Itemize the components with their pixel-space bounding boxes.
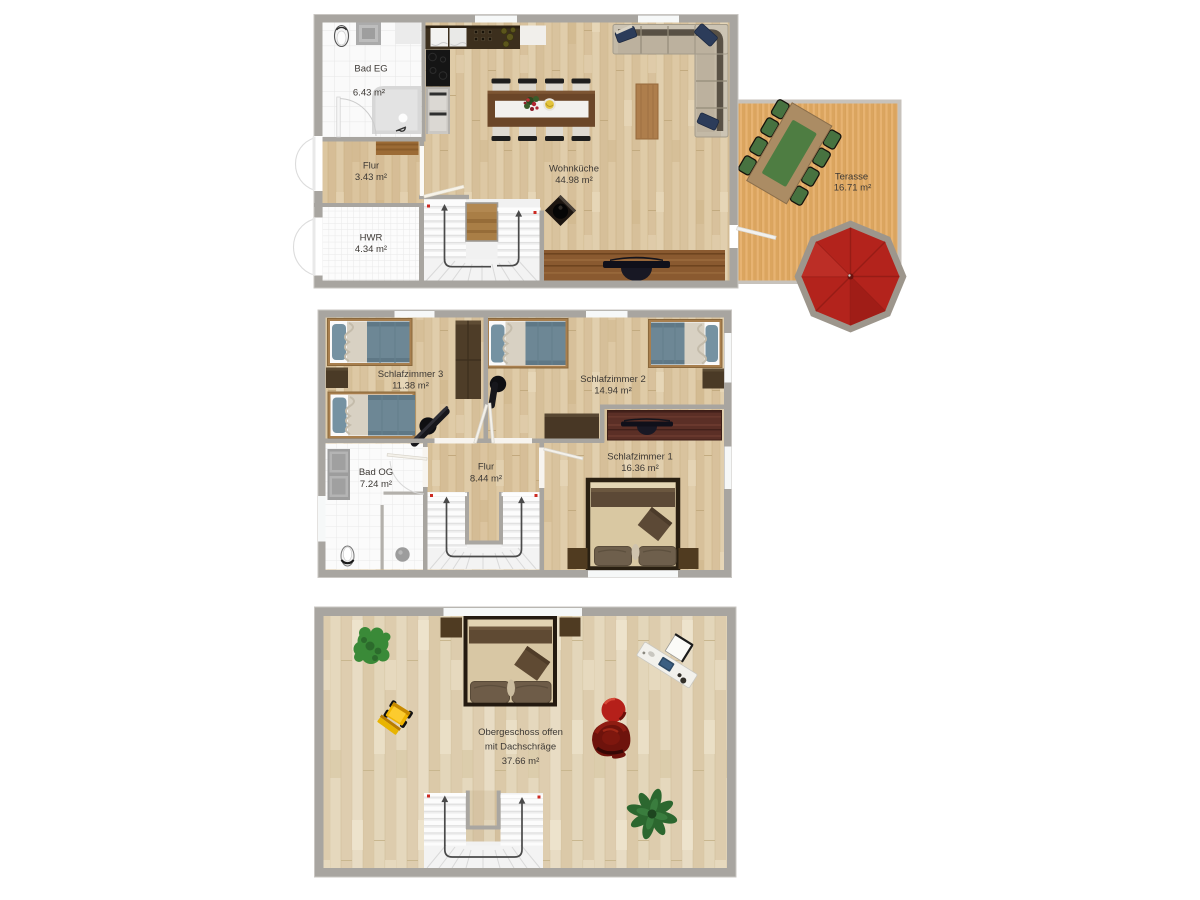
svg-text:mit Dachschräge: mit Dachschräge — [485, 742, 556, 753]
svg-text:Schlafzimmer 2: Schlafzimmer 2 — [580, 374, 645, 385]
svg-text:Terasse: Terasse — [835, 172, 868, 183]
svg-text:37.66 m²: 37.66 m² — [502, 756, 540, 767]
svg-text:Flur: Flur — [478, 462, 494, 473]
svg-text:3.43 m²: 3.43 m² — [355, 172, 387, 183]
svg-text:Bad OG: Bad OG — [359, 467, 393, 478]
svg-text:Flur: Flur — [363, 161, 379, 172]
svg-text:16.36 m²: 16.36 m² — [621, 463, 659, 474]
svg-text:11.38 m²: 11.38 m² — [392, 381, 429, 392]
svg-text:Wohnküche: Wohnküche — [549, 164, 599, 175]
svg-text:4.34 m²: 4.34 m² — [355, 244, 387, 255]
svg-text:Bad EG: Bad EG — [354, 64, 387, 75]
svg-text:14.94 m²: 14.94 m² — [594, 386, 632, 397]
svg-text:16.71 m²: 16.71 m² — [834, 183, 872, 194]
svg-text:HWR: HWR — [360, 233, 383, 244]
svg-text:6.43 m²: 6.43 m² — [353, 88, 385, 99]
svg-text:Schlafzimmer 1: Schlafzimmer 1 — [607, 452, 672, 463]
svg-text:8.44 m²: 8.44 m² — [470, 474, 502, 485]
svg-text:7.24 m²: 7.24 m² — [360, 479, 392, 490]
svg-text:44.98 m²: 44.98 m² — [555, 175, 593, 186]
svg-text:Obergeschoss offen: Obergeschoss offen — [478, 727, 563, 738]
svg-text:Schlafzimmer 3: Schlafzimmer 3 — [378, 369, 443, 380]
